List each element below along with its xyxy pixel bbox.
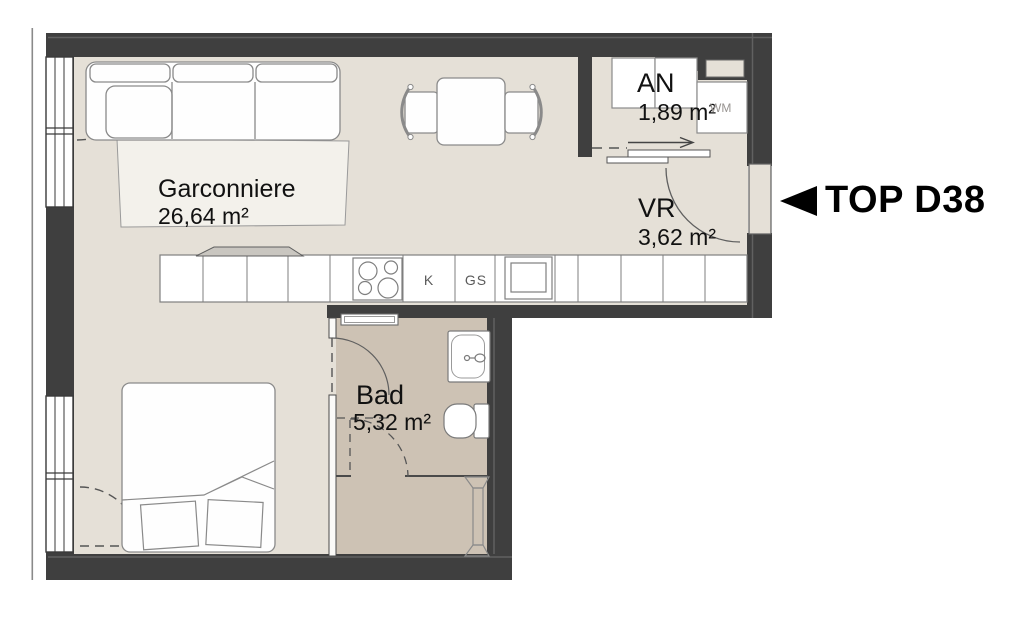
wall-bottom	[48, 554, 512, 580]
chair-right-seat	[505, 92, 538, 133]
chair-left-seat	[405, 92, 438, 133]
toilet	[444, 404, 489, 438]
wall-top	[48, 33, 772, 57]
dining-table	[437, 78, 505, 145]
fridge-label: K	[403, 273, 455, 287]
towel-radiator	[341, 314, 398, 325]
room-label-bad: Bad	[356, 382, 404, 409]
dishwasher-label: GS	[455, 273, 497, 287]
pillow-right	[206, 500, 263, 548]
wall-right-upper-a	[747, 33, 772, 166]
unit-pointer-icon	[780, 186, 817, 216]
room-area-an: 1,89 m²	[638, 101, 716, 124]
site-boundary-line	[32, 28, 34, 580]
pillow-left	[141, 501, 199, 550]
room-area-bad: 5,32 m²	[353, 411, 431, 434]
window-sleeping	[46, 396, 73, 552]
room-label-vr: VR	[638, 195, 676, 222]
washing-machine-label: WM	[710, 102, 731, 114]
unit-label: TOP D38	[825, 181, 986, 219]
wall-right-upper-b	[747, 233, 772, 318]
entrance-door-leaf	[749, 164, 771, 234]
wall-right-lower	[487, 305, 512, 580]
washbasin	[448, 331, 490, 382]
radiator	[196, 247, 303, 256]
shaft-inner	[706, 60, 744, 77]
floorplan-page: Garconniere 26,64 m² AN 1,89 m² WM VR 3,…	[0, 0, 1016, 618]
floorplan-drawing	[0, 0, 1016, 618]
bed	[122, 383, 275, 552]
room-label-garconniere: Garconniere	[158, 177, 296, 202]
room-area-vr: 3,62 m²	[638, 226, 716, 249]
kitchen-sink	[505, 257, 552, 299]
room-label-an: AN	[637, 70, 675, 97]
wall-an-left	[578, 33, 592, 157]
sofa	[86, 62, 340, 140]
window-living	[46, 57, 73, 207]
room-area-garconniere: 26,64 m²	[158, 205, 249, 228]
